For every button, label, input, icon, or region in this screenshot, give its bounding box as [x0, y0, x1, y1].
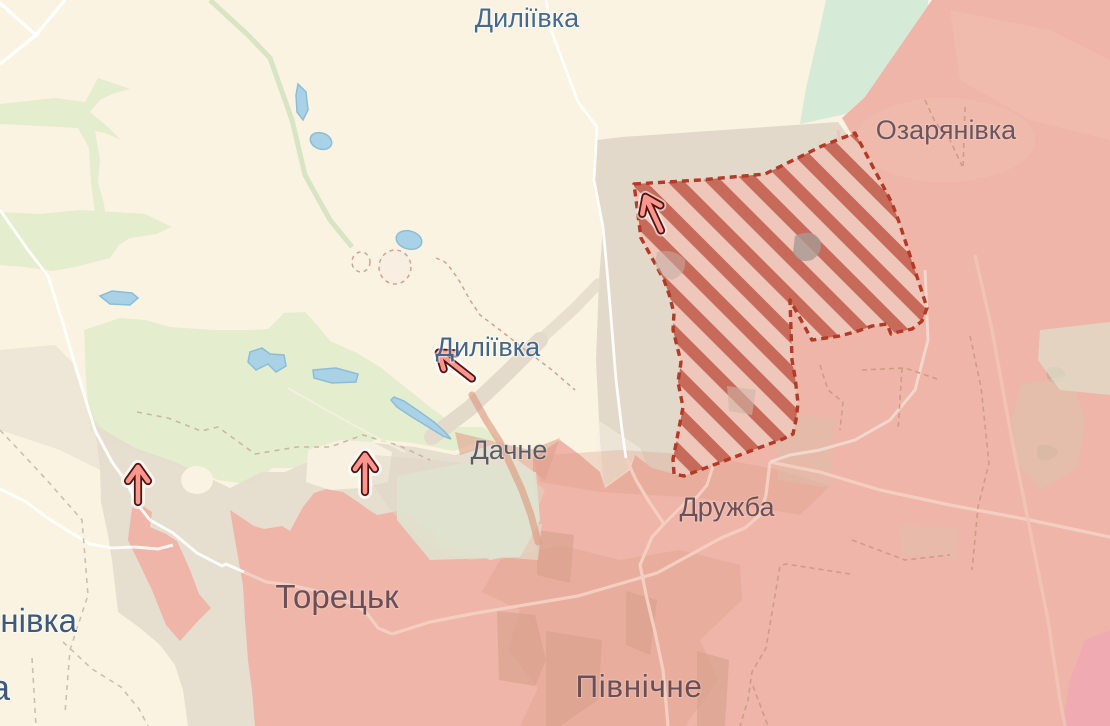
svg-text:Диліївка: Диліївка	[475, 3, 580, 33]
svg-text:Диліївка: Диліївка	[436, 332, 541, 362]
svg-text:нівка: нівка	[0, 602, 77, 639]
svg-text:Дачне: Дачне	[471, 435, 548, 465]
svg-text:Північне: Північне	[576, 668, 703, 704]
svg-text:Торецьк: Торецьк	[275, 578, 399, 615]
svg-text:Дружба: Дружба	[679, 492, 775, 522]
svg-text:а: а	[0, 667, 11, 708]
svg-text:Озарянівка: Озарянівка	[876, 115, 1017, 145]
